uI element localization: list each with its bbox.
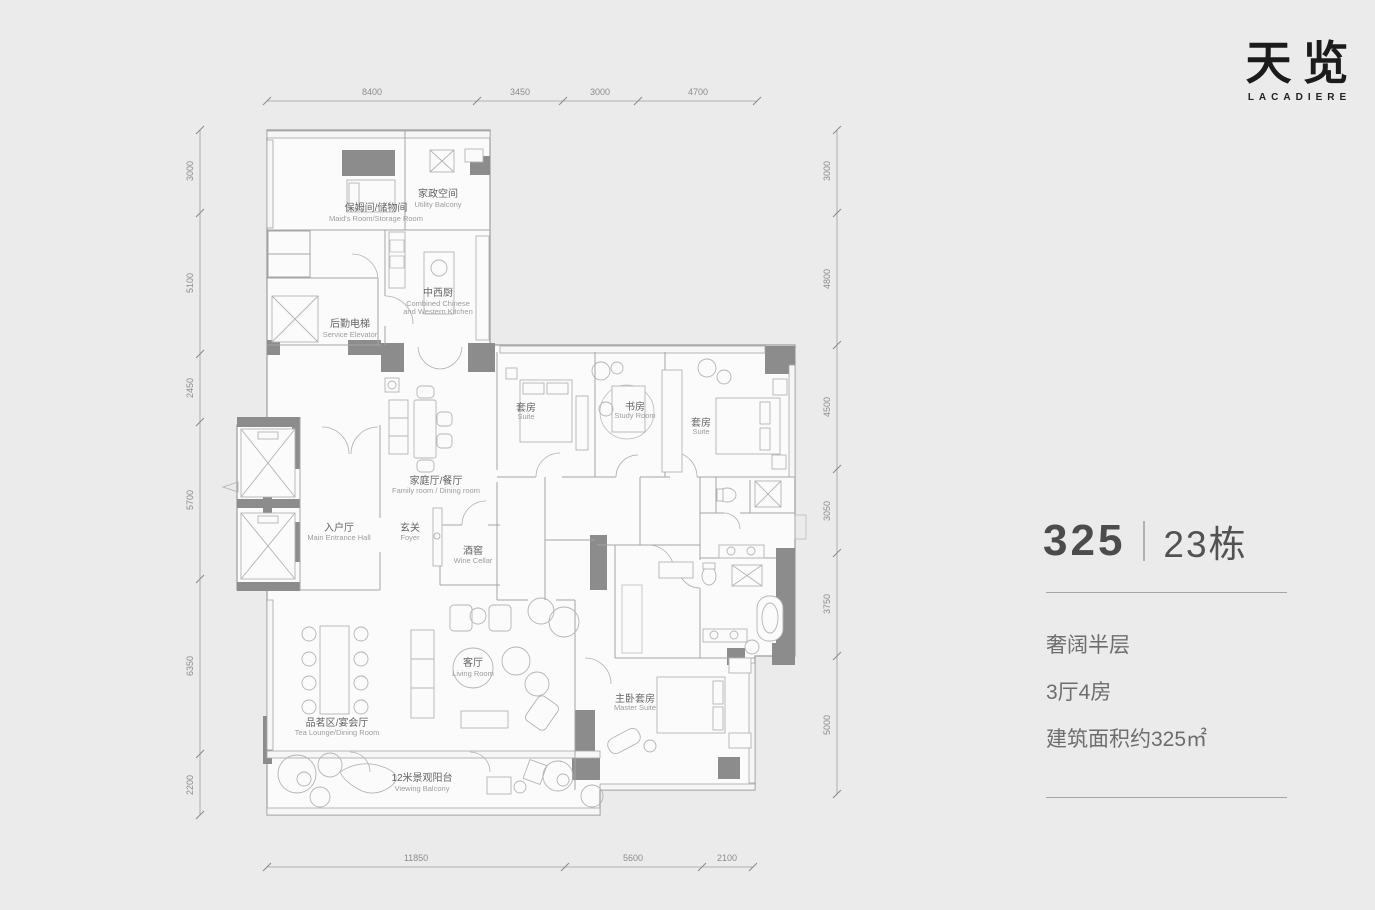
dim-right-5: 3750: [822, 594, 832, 614]
dim-right-6: 5000: [822, 715, 832, 735]
dim-right-3: 4500: [822, 397, 832, 417]
room-label-suite1-en: Suite: [517, 412, 534, 421]
room-label-wine-en: Wine Cellar: [454, 556, 493, 565]
room-label-kitchen-en2: and Western Kitchen: [403, 307, 473, 316]
room-label-balcony-cn: 12米景观阳台: [391, 771, 452, 784]
building-number: 23栋: [1163, 514, 1247, 568]
room-label-utility-en: Utility Balcony: [414, 200, 461, 209]
room-label-entrance-en: Main Entrance Hall: [307, 533, 371, 542]
brand-logo-en: LACADIERE: [1233, 92, 1366, 103]
dim-right-1: 3000: [822, 161, 832, 181]
brand-logo-cn: 天览: [1233, 38, 1372, 89]
unit-divider: [1143, 521, 1145, 561]
dim-top-2: 3450: [510, 87, 530, 97]
dim-bottom-1: 11850: [404, 853, 428, 863]
room-label-maid-cn: 保姆间/储物间: [345, 201, 408, 214]
entry-arrow-icon: [223, 482, 238, 492]
dim-left-3: 2450: [185, 378, 195, 398]
dim-left-5: 6350: [185, 656, 195, 676]
dimension-top: 8400 3450 3000 4700: [263, 87, 761, 105]
feature-line-3: 建筑面积约325㎡: [1046, 716, 1207, 763]
dim-right-4: 3050: [822, 501, 832, 521]
brand-logo: 天览 LACADIERE: [1233, 38, 1361, 103]
room-label-living-en: Living Room: [452, 669, 494, 678]
info-rule-bottom: [1046, 797, 1287, 798]
dim-right-2: 4800: [822, 269, 832, 289]
dimension-bottom: 11850 5600 2100: [263, 853, 757, 871]
room-label-suite2-en: Suite: [692, 427, 709, 436]
room-label-master-en: Master Suite: [614, 703, 656, 712]
dimension-right: 3000 4800 4500 3050 3750 5000: [822, 126, 841, 798]
unit-title-row: 325 23栋: [1043, 514, 1248, 568]
room-label-maid-en: Maid's Room/Storage Room: [329, 214, 423, 223]
feature-line-2: 3厅4房: [1046, 669, 1207, 716]
room-label-family-en: Family room / Dining room: [392, 486, 480, 495]
dimension-left: 3000 5100 2450 5700 6350 2200: [185, 126, 204, 819]
room-label-balcony-en: Viewing Balcony: [395, 784, 450, 793]
floor-plan-drawing: 保姆间/储物间 Maid's Room/Storage Room 家政空间 Ut…: [0, 0, 1375, 910]
unit-features: 奢阔半层 3厅4房 建筑面积约325㎡: [1046, 622, 1207, 763]
room-label-foyer-en: Foyer: [400, 533, 420, 542]
dim-top-3: 3000: [590, 87, 610, 97]
dim-left-4: 5700: [185, 490, 195, 510]
room-label-utility-cn: 家政空间: [418, 187, 458, 200]
dim-bottom-2: 5600: [623, 853, 643, 863]
dim-top-1: 8400: [362, 87, 382, 97]
dim-left-6: 2200: [185, 775, 195, 795]
room-label-tea-en: Tea Lounge/Dining Room: [295, 728, 380, 737]
dim-bottom-3: 2100: [717, 853, 737, 863]
info-rule-top: [1046, 592, 1287, 593]
room-label-service-elevator-en: Service Elevator: [323, 330, 378, 339]
floor-plan-page: 保姆间/储物间 Maid's Room/Storage Room 家政空间 Ut…: [0, 0, 1375, 910]
room-label-study-en: Study Room: [614, 411, 655, 420]
room-label-kitchen-cn: 中西厨: [423, 286, 453, 299]
room-label-service-elevator-cn: 后勤电梯: [330, 317, 370, 330]
unit-number: 325: [1043, 516, 1125, 566]
room-label-living-cn: 客厅: [463, 656, 483, 669]
feature-line-1: 奢阔半层: [1046, 622, 1207, 669]
dim-top-4: 4700: [688, 87, 708, 97]
dim-left-1: 3000: [185, 161, 195, 181]
dim-left-2: 5100: [185, 273, 195, 293]
